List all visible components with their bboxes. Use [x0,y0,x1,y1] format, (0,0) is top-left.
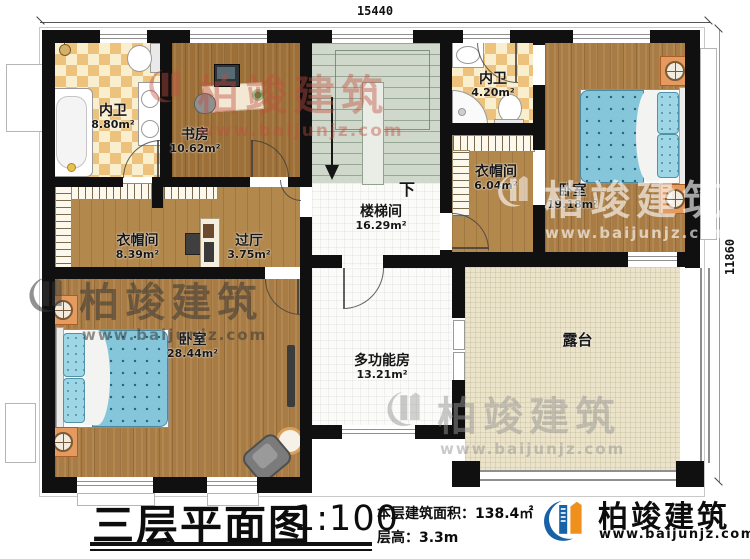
wall [415,425,465,439]
wall [42,477,77,493]
wall [685,30,700,268]
wall [160,42,172,177]
door-leaf [157,140,159,177]
toilet [127,45,152,72]
wall [160,177,250,187]
pillow [657,92,679,134]
wall [452,123,533,135]
room-label-bath2: 内卫 4.20m² [458,72,528,98]
terrace-door-panel [453,352,465,382]
desk-chair [194,93,216,114]
title-underline [90,542,372,546]
cabinet-item [203,224,214,238]
window [573,30,650,43]
pillow [63,333,85,377]
dimension-tick [36,16,44,24]
brand-url: www.baijunjz.com [599,527,750,542]
wall [300,30,312,180]
terrace-railing [700,268,702,463]
stair-direction-label: 下 [395,182,419,199]
room-label-stairwell: 楼梯间 16.29m² [336,205,426,231]
wall [312,255,342,268]
terrace-railing [480,470,676,472]
dimension-line-right [719,30,720,483]
bed-blanket [580,90,644,183]
plant-icon [251,88,265,102]
room-label-terrace: 露台 [545,333,610,349]
stair-direction-arrow-icon [325,165,339,180]
wall [300,217,312,493]
room-label-bedroom2: 卧室 19.18m² [530,184,615,210]
pillow [657,134,679,178]
title-underline [90,549,372,551]
lamp-icon [665,189,685,209]
door-leaf [452,247,488,249]
window [628,252,677,267]
dimension-tick [704,16,712,24]
shower-head-icon [59,44,71,56]
wall [533,205,545,252]
terrace-post [452,461,480,487]
clothes-rack [55,183,72,272]
brand-logo-icon [540,492,596,550]
exterior-sill [5,403,36,463]
dimension-line-top [40,22,710,23]
floor-multi-room [312,268,452,425]
shower-drain [458,108,466,116]
window [190,30,267,43]
brand-logo [540,492,596,554]
room-label-hall: 过厅 3.75m² [214,234,284,260]
washbasin [456,46,480,64]
window [207,477,257,493]
wall [452,255,465,318]
wall [55,177,123,187]
window [100,30,147,43]
room-label-closet1: 衣帽间 8.39m² [95,234,180,260]
terrace-post [676,461,704,487]
exterior-sill [700,48,717,240]
lamp-icon [665,61,685,81]
window [77,477,153,493]
wall [42,267,265,279]
lamp-icon [53,432,73,452]
wall [153,477,207,493]
terrace-railing [480,479,676,481]
dimension-right-value: 11860 [723,227,737,287]
wall [288,177,312,187]
tv [287,345,295,407]
wall [42,30,55,493]
bed-sheet [85,330,110,425]
wall [533,85,545,150]
exterior-sill [6,64,44,132]
door-leaf [297,279,299,314]
pillow [63,378,85,423]
floor-plan-canvas: 内卫 8.80m² 书房 10.62m² 楼梯间 16.29m² 下 内卫 4.… [0,0,750,559]
door-leaf [343,268,345,308]
terrace-railing [708,268,710,463]
terrace-door-panel [453,320,465,350]
room-label-bedroom1: 卧室 28.44m² [150,333,235,359]
stair-center-rail [362,82,384,185]
room-label-bath1: 内卫 8.80m² [78,104,148,130]
window [332,30,413,43]
dimension-top-value: 15440 [340,4,410,18]
bathtub-drain [67,163,76,172]
window [342,425,415,439]
wall [383,255,452,268]
wall [440,252,628,267]
room-label-multi-room: 多功能房 13.21m² [337,354,427,380]
monitor-screen [217,67,235,79]
floor-height-text: 层高：3.3m [377,527,458,547]
floor-terrace [465,267,680,470]
wall [440,30,452,213]
wall [413,30,463,43]
door-leaf [251,140,253,177]
lamp-icon [53,300,73,320]
wall [533,30,545,45]
room-label-study: 书房 10.62m² [160,128,230,154]
cabinet-item [204,242,214,262]
wall [152,177,163,208]
stair-direction-line [331,97,333,167]
floor-area-text: 本层建筑面积：138.4㎡ [377,503,533,523]
wall [677,252,700,267]
wall [452,380,465,425]
wall [312,425,342,439]
room-label-closet2: 衣帽间 6.04m² [456,165,536,191]
window [463,30,510,43]
